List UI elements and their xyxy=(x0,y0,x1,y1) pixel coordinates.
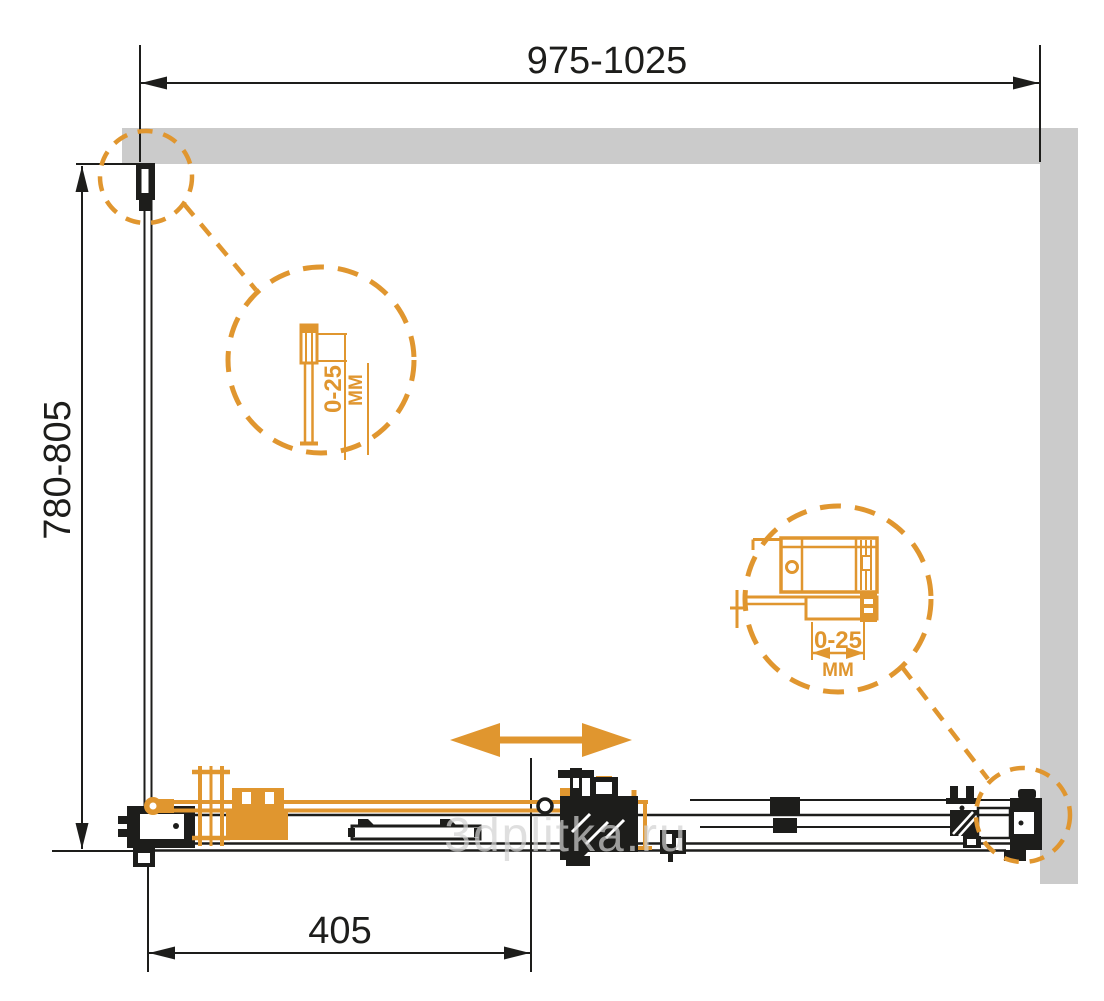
arrow-head-left xyxy=(450,723,500,757)
dim-width-arrow-right xyxy=(1013,77,1039,90)
wall-right xyxy=(1040,128,1078,884)
dim-door-arrow-left xyxy=(149,947,175,960)
left-wall-bracket xyxy=(118,806,195,867)
door-roller-left xyxy=(192,766,288,846)
drawing-svg: 975-1025 780-805 405 xyxy=(0,0,1104,1001)
dim-door-arrow-right xyxy=(504,947,530,960)
detail-right-value: 0-25 xyxy=(814,627,862,654)
slide-direction-arrow-icon xyxy=(450,723,632,757)
technical-drawing-canvas: 975-1025 780-805 405 xyxy=(0,0,1104,1001)
dim-depth-arrow-top xyxy=(76,166,89,192)
dimension-depth-label: 780-805 xyxy=(37,400,79,539)
detail-left-unit: MM xyxy=(346,374,367,406)
detail-right-unit: MM xyxy=(822,660,854,681)
walls xyxy=(122,128,1078,884)
fixed-side-panel xyxy=(136,163,155,808)
dim-width-arrow-left xyxy=(141,77,167,90)
arrow-head-right xyxy=(582,723,632,757)
rail-clamp xyxy=(770,797,800,833)
leader-line-top-left xyxy=(184,204,256,290)
watermark: 3dplitka.ru xyxy=(444,809,687,862)
wall-top xyxy=(122,128,1078,164)
dimension-door-travel-label: 405 xyxy=(308,910,371,952)
dim-depth-arrow-bottom xyxy=(76,823,89,849)
door-end-knob xyxy=(144,797,174,815)
detail-left-value: 0-25 xyxy=(320,365,347,413)
dimension-width-label: 975-1025 xyxy=(527,40,688,82)
leader-line-bottom-right xyxy=(902,667,988,779)
detail-callout-left xyxy=(228,267,414,460)
